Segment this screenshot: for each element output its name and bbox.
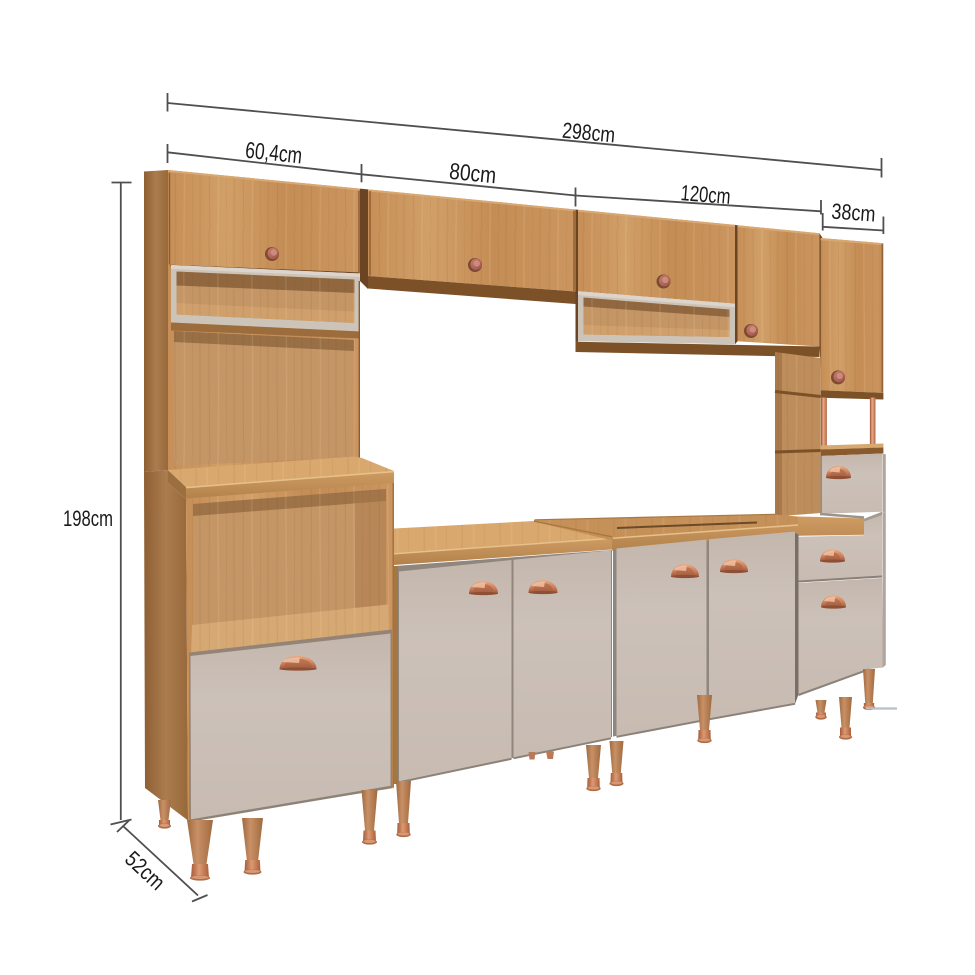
svg-text:120cm: 120cm	[680, 180, 732, 209]
svg-text:298cm: 298cm	[561, 118, 616, 148]
svg-text:80cm: 80cm	[448, 158, 497, 189]
svg-text:38cm: 38cm	[831, 199, 877, 227]
svg-text:198cm: 198cm	[63, 506, 113, 531]
